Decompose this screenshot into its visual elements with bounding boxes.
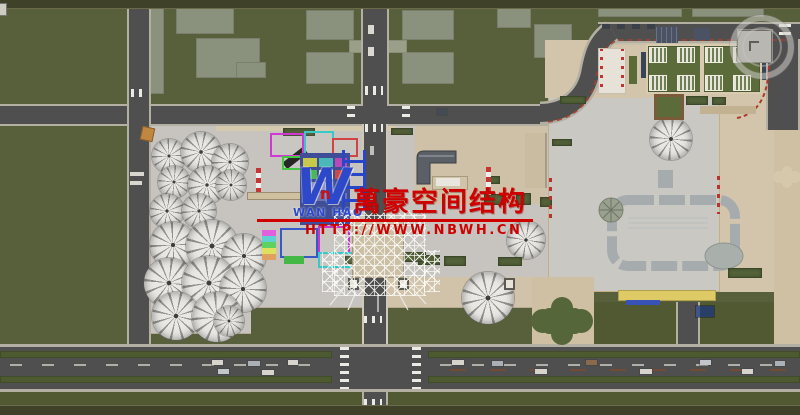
lane-marking bbox=[370, 146, 374, 155]
crosswalk bbox=[347, 106, 355, 120]
umbrella-structure bbox=[216, 170, 246, 200]
truck bbox=[696, 306, 714, 317]
red-dot-canopy bbox=[598, 48, 626, 94]
track-stub bbox=[658, 170, 673, 188]
road-marking bbox=[130, 181, 142, 185]
viewport-canvas[interactable]: W n WAN HAO 萬豪空间结构 HTTP://WWW.NBWH.CN bbox=[0, 0, 800, 415]
cad-rainbow-strip bbox=[262, 230, 276, 260]
quatrefoil-ornament bbox=[773, 166, 800, 188]
umbrella-structure bbox=[214, 306, 244, 336]
grid-panel bbox=[656, 27, 678, 43]
hedge-planter bbox=[560, 96, 586, 104]
hedge-planter bbox=[391, 128, 413, 135]
glass-roof bbox=[650, 48, 666, 62]
frame-strip-top bbox=[0, 0, 800, 9]
green-bar bbox=[629, 56, 637, 84]
glass-roof bbox=[706, 48, 722, 62]
pond bbox=[705, 243, 743, 269]
glass-roof bbox=[706, 76, 722, 90]
watermark-title: 萬豪空间结构 bbox=[353, 180, 527, 219]
frame-strip-bottom bbox=[0, 405, 800, 415]
hedge-planter bbox=[712, 97, 726, 105]
framed-planter bbox=[654, 94, 684, 120]
blue-sign bbox=[626, 300, 660, 305]
crosswalk bbox=[365, 124, 383, 132]
hedge-planter bbox=[686, 96, 708, 105]
crosswalk bbox=[131, 89, 145, 97]
glass-roof bbox=[678, 48, 694, 62]
road-marking bbox=[368, 47, 374, 56]
watermark-url: HTTP://WWW.NBWH.CN bbox=[305, 223, 523, 238]
site-booth bbox=[504, 278, 515, 290]
car bbox=[437, 109, 447, 115]
crosswalk bbox=[365, 86, 383, 95]
wanhao-logo-accent: n bbox=[320, 187, 331, 202]
hedge-planter bbox=[444, 256, 466, 266]
hedge-planter bbox=[498, 257, 522, 266]
orbit-ring-inner-icon bbox=[742, 27, 782, 67]
crosswalk bbox=[402, 106, 410, 120]
scaffold-wing bbox=[322, 252, 338, 292]
crosswalk bbox=[364, 316, 382, 323]
glass-roof bbox=[678, 76, 694, 90]
umbrella-structure bbox=[650, 118, 692, 160]
window-corner-icon bbox=[0, 3, 7, 16]
orbit-nav-widget[interactable] bbox=[730, 15, 794, 79]
umbrella-structure bbox=[158, 166, 190, 198]
road-marking bbox=[368, 25, 374, 34]
red-tick-edge bbox=[549, 178, 552, 220]
quatrefoil-garden bbox=[531, 297, 593, 345]
red-tick-edge bbox=[717, 176, 720, 214]
courtyard-divider bbox=[700, 46, 704, 92]
low-wall bbox=[700, 106, 756, 114]
parked-cars bbox=[602, 24, 658, 29]
hedge-planter bbox=[728, 268, 762, 278]
cad-block bbox=[270, 133, 304, 157]
hedge-planter bbox=[552, 139, 572, 146]
watermark-underline bbox=[257, 219, 533, 222]
dark-panel bbox=[694, 28, 710, 40]
scaffold-wing bbox=[424, 250, 440, 292]
road-marking bbox=[130, 172, 144, 176]
beam bbox=[247, 192, 303, 200]
glass-roof bbox=[650, 76, 666, 90]
cad-cell bbox=[284, 256, 304, 264]
